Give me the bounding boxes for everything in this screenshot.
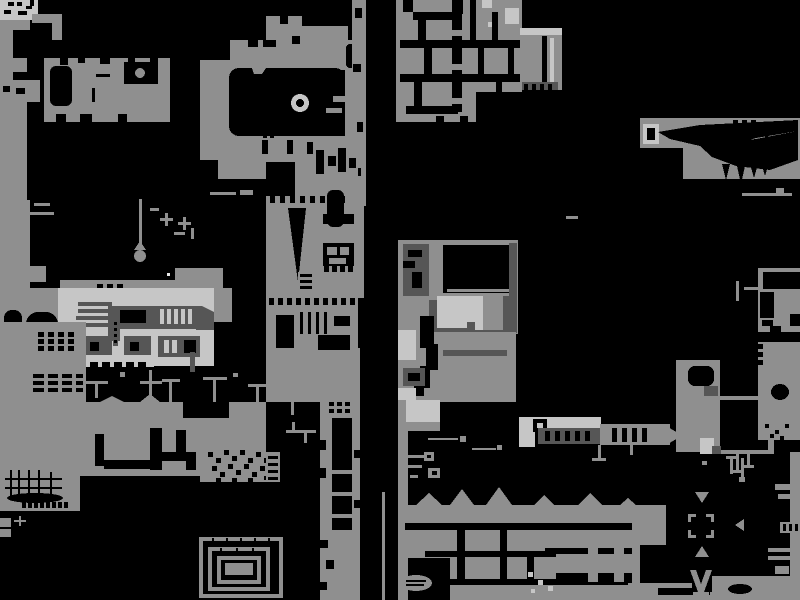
- map-shape: [167, 309, 171, 324]
- map-shape: [252, 472, 257, 477]
- map-shape: [126, 362, 134, 368]
- map-shape: [280, 196, 285, 203]
- map-shape: [349, 158, 356, 168]
- map-shape: [693, 592, 709, 598]
- map-shape: [60, 58, 68, 65]
- map-shape: [332, 266, 337, 272]
- map-shape: [632, 428, 637, 442]
- map-shape: [0, 100, 27, 200]
- map-shape: [0, 266, 46, 282]
- map-shape: [0, 527, 11, 529]
- map-shape: [216, 458, 221, 463]
- map-shape: [424, 48, 432, 74]
- map-shape: [783, 524, 786, 531]
- map-shape: [300, 196, 305, 203]
- map-shape: [780, 436, 784, 440]
- map-shape: [406, 106, 458, 114]
- map-shape: [520, 28, 562, 35]
- map-shape: [408, 250, 422, 257]
- map-shape: [324, 266, 329, 272]
- map-shape: [520, 28, 562, 90]
- map-shape: [188, 309, 192, 324]
- map-shape: [279, 537, 283, 598]
- map-shape: [276, 315, 294, 348]
- map-shape: [217, 580, 261, 584]
- map-shape: [80, 114, 92, 122]
- map-shape: [216, 478, 221, 482]
- map-shape: [345, 409, 350, 413]
- map-shape: [412, 272, 422, 288]
- map-shape: [400, 40, 458, 48]
- map-shape: [323, 214, 354, 224]
- map-shape: [758, 332, 800, 342]
- map-shape: [338, 148, 346, 172]
- map-shape: [48, 339, 54, 344]
- map-shape: [765, 424, 769, 428]
- map-shape: [186, 452, 196, 470]
- map-shape: [280, 458, 285, 463]
- map-shape: [786, 133, 789, 144]
- map-shape: [532, 84, 536, 90]
- map-shape: [688, 514, 691, 522]
- map-shape: [48, 346, 54, 351]
- map-shape: [345, 402, 350, 406]
- map-shape: [482, 0, 492, 8]
- map-shape: [130, 342, 139, 351]
- map-shape: [266, 348, 360, 402]
- map-shape: [290, 196, 295, 203]
- map-shape: [775, 566, 789, 574]
- map-shape: [320, 540, 328, 548]
- map-shape: [405, 523, 632, 530]
- map-shape: [292, 422, 295, 430]
- map-shape: [400, 575, 432, 591]
- map-shape: [476, 92, 522, 122]
- map-shape: [742, 193, 792, 196]
- map-shape: [266, 547, 270, 591]
- map-shape: [58, 346, 64, 351]
- map-shape: [26, 6, 32, 9]
- map-shape: [457, 557, 465, 579]
- map-shape: [403, 261, 415, 268]
- map-shape: [400, 74, 458, 82]
- map-shape: [120, 310, 146, 323]
- map-shape: [316, 150, 324, 174]
- map-shape: [50, 66, 72, 106]
- map-shape: [217, 556, 261, 560]
- map-shape: [68, 332, 74, 337]
- map-shape: [114, 322, 117, 325]
- map-shape: [642, 428, 647, 442]
- map-shape: [296, 99, 304, 107]
- map-shape: [78, 302, 112, 306]
- map-shape: [256, 452, 261, 457]
- map-shape: [184, 340, 196, 353]
- map-shape: [181, 309, 185, 324]
- map-shape: [354, 500, 360, 508]
- map-shape: [208, 587, 270, 591]
- map-shape: [508, 48, 514, 74]
- map-shape: [744, 287, 758, 290]
- map-shape: [268, 470, 278, 473]
- map-shape: [248, 384, 268, 387]
- map-shape: [332, 470, 352, 474]
- map-shape: [269, 298, 274, 305]
- map-shape: [540, 84, 544, 90]
- map-shape: [436, 116, 444, 122]
- map-shape: [212, 466, 217, 471]
- map-shape: [78, 58, 85, 63]
- map-shape: [700, 438, 714, 454]
- map-shape: [500, 530, 507, 551]
- map-shape: [565, 431, 570, 441]
- map-shape: [5, 487, 62, 489]
- map-shape: [280, 16, 288, 24]
- map-shape: [528, 572, 533, 577]
- map-shape: [208, 547, 270, 551]
- map-shape: [135, 68, 145, 78]
- map-shape: [217, 556, 221, 584]
- map-shape: [354, 450, 360, 458]
- map-shape: [139, 199, 142, 249]
- map-shape: [406, 584, 424, 586]
- map-shape: [413, 12, 457, 20]
- map-shape: [164, 340, 169, 353]
- map-shape: [32, 14, 62, 23]
- map-shape: [304, 433, 307, 443]
- map-shape: [524, 84, 528, 90]
- map-shape: [240, 190, 253, 195]
- map-shape: [58, 332, 64, 337]
- map-shape: [236, 470, 241, 475]
- map-shape: [232, 456, 237, 461]
- map-shape: [776, 188, 784, 193]
- map-shape: [747, 452, 750, 467]
- map-shape: [437, 296, 483, 332]
- map-shape: [114, 362, 122, 368]
- map-shape: [172, 340, 177, 353]
- map-shape: [96, 74, 110, 77]
- map-shape: [318, 335, 350, 350]
- map-shape: [790, 452, 800, 582]
- map-shape: [537, 423, 543, 428]
- map-shape: [333, 96, 349, 102]
- map-shape: [34, 203, 50, 206]
- map-shape: [766, 148, 770, 153]
- map-shape: [0, 20, 13, 82]
- map-shape: [8, 2, 14, 6]
- map-shape: [58, 372, 62, 396]
- map-shape: [190, 352, 195, 372]
- map-shape: [598, 445, 601, 459]
- map-shape: [95, 434, 104, 466]
- map-shape: [408, 465, 422, 468]
- map-shape: [316, 312, 319, 334]
- upper-left-structure: [44, 58, 170, 122]
- map-shape: [470, 8, 476, 40]
- map-shape: [268, 538, 270, 541]
- map-shape: [324, 312, 327, 334]
- map-shape: [114, 334, 117, 337]
- map-shape: [770, 434, 774, 438]
- map-shape: [150, 208, 159, 211]
- map-shape: [291, 370, 294, 384]
- map-shape: [765, 133, 768, 144]
- map-shape: [248, 478, 253, 482]
- map-shape: [263, 124, 267, 138]
- map-shape: [90, 342, 99, 351]
- map-shape: [382, 492, 385, 600]
- map-shape: [287, 140, 293, 154]
- map-shape: [310, 196, 315, 203]
- map-shape: [337, 409, 342, 413]
- map-shape: [770, 326, 781, 332]
- map-shape: [286, 430, 316, 433]
- map-shape: [225, 563, 253, 575]
- map-shape: [44, 372, 48, 396]
- map-shape: [760, 292, 774, 318]
- map-shape: [229, 68, 345, 136]
- map-shape: [758, 352, 763, 357]
- map-shape: [0, 511, 11, 518]
- map-shape: [768, 548, 790, 552]
- map-shape: [296, 298, 301, 305]
- map-shape: [323, 298, 328, 305]
- map-shape: [470, 0, 476, 8]
- map-shape: [452, 98, 462, 104]
- lower-left-fields: [0, 322, 86, 404]
- map-shape: [457, 530, 465, 551]
- map-shape: [284, 470, 289, 475]
- map-shape: [203, 377, 227, 380]
- map-shape: [17, 2, 22, 6]
- map-shape: [789, 524, 792, 531]
- map-shape: [0, 537, 11, 540]
- map-shape: [58, 502, 62, 508]
- map-shape: [795, 524, 798, 531]
- map-shape: [329, 402, 334, 406]
- map-shape: [114, 340, 117, 343]
- map-shape: [332, 514, 352, 518]
- map-shape: [758, 360, 763, 365]
- map-shape: [52, 23, 62, 40]
- map-shape: [13, 58, 27, 72]
- map-shape: [730, 458, 733, 474]
- map-shape: [428, 438, 458, 440]
- map-shape: [160, 309, 164, 324]
- map-shape: [622, 428, 627, 442]
- map-shape: [300, 26, 348, 42]
- map-shape: [531, 589, 535, 593]
- map-shape: [329, 258, 346, 264]
- map-shape: [472, 448, 496, 450]
- map-shape: [213, 380, 216, 405]
- map-shape: [702, 461, 707, 465]
- map-shape: [40, 502, 44, 508]
- map-shape: [134, 250, 146, 262]
- map-shape: [285, 384, 303, 387]
- map-shape: [248, 40, 258, 47]
- map-shape: [11, 511, 44, 540]
- map-shape: [410, 475, 418, 478]
- map-shape: [326, 560, 334, 569]
- map-shape: [328, 156, 336, 166]
- map-shape: [22, 502, 26, 508]
- map-shape: [300, 274, 312, 277]
- map-shape: [739, 477, 745, 482]
- map-shape: [736, 281, 739, 301]
- map-shape: [287, 298, 292, 305]
- map-shape: [728, 584, 752, 594]
- map-shape: [418, 20, 426, 40]
- map-shape: [199, 537, 203, 598]
- map-shape: [292, 36, 300, 44]
- map-shape: [176, 430, 186, 461]
- map-shape: [548, 84, 552, 90]
- map-shape: [630, 445, 633, 455]
- map-shape: [462, 40, 520, 48]
- map-shape: [443, 350, 507, 356]
- map-shape: [100, 58, 110, 64]
- map-shape: [741, 458, 744, 477]
- map-shape: [542, 36, 547, 82]
- map-shape: [763, 272, 800, 289]
- map-shape: [688, 535, 696, 538]
- map-shape: [711, 514, 714, 522]
- map-shape: [30, 0, 34, 6]
- map-shape: [460, 436, 466, 442]
- map-shape: [16, 88, 25, 94]
- map-shape: [406, 422, 440, 431]
- map-shape: [38, 346, 44, 351]
- map-shape: [545, 431, 550, 441]
- map-shape: [320, 582, 327, 590]
- map-shape: [240, 538, 242, 541]
- map-shape: [712, 446, 721, 454]
- map-shape: [90, 362, 98, 368]
- map-shape: [165, 213, 168, 226]
- map-shape: [260, 466, 265, 471]
- map-shape: [210, 192, 236, 195]
- map-shape: [592, 458, 606, 461]
- map-shape: [300, 280, 312, 283]
- map-shape: [233, 373, 238, 377]
- map-shape: [278, 298, 283, 305]
- map-shape: [300, 312, 303, 334]
- right-edge-strip: [758, 268, 800, 440]
- map-shape: [162, 379, 180, 382]
- map-shape: [320, 196, 325, 203]
- map-shape: [183, 402, 229, 418]
- map-shape: [414, 82, 422, 106]
- map-shape: [575, 431, 580, 441]
- map-shape: [327, 247, 337, 255]
- map-shape: [406, 400, 440, 422]
- map-shape: [230, 40, 348, 70]
- map-shape: [452, 64, 462, 70]
- map-shape: [254, 538, 256, 541]
- map-shape: [758, 344, 763, 349]
- map-shape: [398, 330, 416, 360]
- map-shape: [150, 428, 162, 470]
- map-shape: [174, 232, 185, 235]
- map-shape: [505, 8, 519, 24]
- map-shape: [500, 557, 507, 579]
- map-shape: [326, 108, 342, 113]
- map-shape: [771, 384, 789, 400]
- map-shape: [550, 38, 554, 82]
- map-shape: [58, 339, 64, 344]
- map-shape: [585, 431, 590, 441]
- map-svg: [0, 0, 800, 600]
- map-shape: [548, 586, 553, 591]
- map-shape: [308, 312, 311, 334]
- map-shape: [403, 0, 413, 12]
- map-shape: [3, 86, 10, 92]
- map-shape: [355, 8, 362, 18]
- map-shape: [762, 320, 773, 326]
- map-shape: [228, 464, 233, 469]
- map-shape: [268, 477, 278, 480]
- map-shape: [588, 542, 598, 582]
- map-shape: [305, 298, 310, 305]
- map-shape: [688, 366, 714, 386]
- map-shape: [462, 74, 520, 82]
- map-shape: [149, 370, 152, 381]
- map-shape: [218, 155, 266, 179]
- map-shape: [5, 478, 62, 480]
- map-shape: [452, 0, 462, 112]
- map-shape: [647, 128, 655, 140]
- map-shape: [712, 576, 800, 600]
- map-shape: [263, 40, 276, 47]
- map-shape: [341, 298, 346, 305]
- map-shape: [398, 388, 416, 400]
- map-shape: [353, 64, 361, 72]
- map-shape: [236, 548, 238, 551]
- map-shape: [340, 266, 345, 272]
- map-shape: [614, 542, 624, 582]
- map-shape: [44, 511, 80, 540]
- map-shape: [226, 538, 228, 541]
- map-shape: [262, 140, 268, 154]
- map-shape: [268, 456, 278, 459]
- map-shape: [704, 386, 718, 396]
- map-shape: [350, 298, 355, 305]
- mid-column-core: [398, 240, 518, 402]
- map-shape: [566, 216, 578, 219]
- map-shape: [334, 316, 350, 326]
- map-shape: [408, 373, 420, 381]
- map-shape: [314, 298, 319, 305]
- map-shape: [726, 456, 738, 459]
- map-shape: [7, 493, 63, 503]
- map-shape: [751, 120, 756, 128]
- map-shape: [38, 339, 44, 344]
- map-shape: [174, 309, 178, 324]
- map-shape: [270, 196, 275, 203]
- map-shape: [232, 478, 237, 482]
- map-shape: [425, 551, 556, 557]
- map-shape: [612, 428, 617, 442]
- map-shape: [212, 538, 214, 541]
- game-map-view: [0, 0, 800, 600]
- map-shape: [244, 464, 249, 469]
- map-shape: [92, 88, 95, 102]
- map-shape: [782, 148, 786, 153]
- map-shape: [420, 316, 434, 348]
- map-shape: [452, 30, 462, 36]
